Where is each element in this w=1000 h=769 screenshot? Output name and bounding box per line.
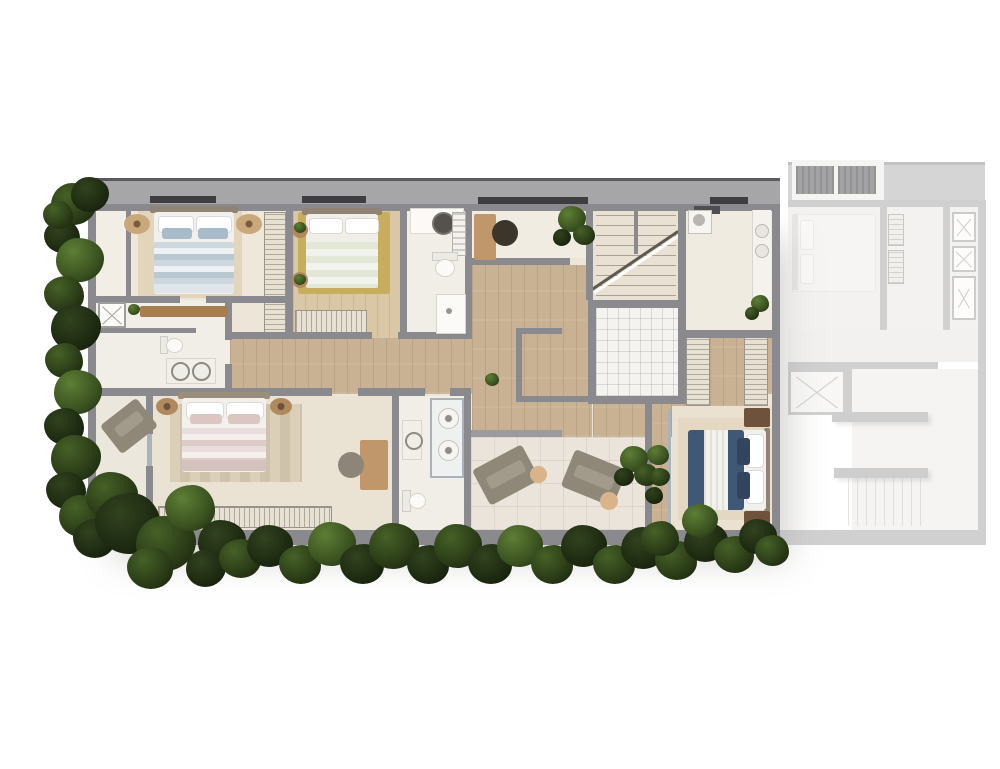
wall [686,330,780,338]
basin [405,432,423,450]
toilet-bowl [435,259,455,277]
shower-tray [436,294,466,334]
floorplan-canvas [0,0,1000,769]
laundry-basin [755,244,769,258]
bedroom-2-pillow [309,218,343,234]
master-nightstand [156,398,178,415]
side-table [530,466,547,483]
bedroom-1-accent-pillow [162,228,192,239]
bedroom-2-side-table [292,222,308,238]
wall [286,204,293,337]
laundry-basin [755,224,769,238]
wall [392,396,399,530]
washer-xbox [98,302,126,328]
wall [465,204,472,332]
shower-room-floor [596,308,678,396]
wall [152,530,780,545]
master-balcony-glass-door [147,434,152,466]
bedroom-3-duvet-runner [704,430,728,510]
wall [230,332,372,339]
wall [400,204,407,339]
window [302,196,366,203]
bedroom-1-nightstand [236,214,262,234]
window [150,196,216,203]
wall [464,396,471,530]
bedroom-1-duvet [154,242,234,288]
side-table [600,492,618,510]
window [478,197,588,204]
master-nightstand [270,398,292,415]
wall [88,204,96,545]
wall [516,328,562,334]
wall [225,364,232,390]
wall [358,388,398,396]
closet-path-floor [710,334,744,406]
balcony-3-glass-door [668,410,671,530]
bedroom-2-pillow [345,218,379,234]
bedroom-1-dresser [140,306,228,317]
desk-chair [492,220,518,246]
master-accent-pillow [190,414,222,424]
bedroom-1-duvet-fold [154,284,234,293]
master-duvet-fold [182,460,266,471]
bedroom-3-accent-pillow [737,438,750,465]
wall [678,204,686,340]
shower-head [438,440,459,461]
wall [398,388,425,396]
walkin-closet-right [744,336,768,406]
master-desk [360,440,388,490]
main-unit [0,0,1000,769]
bedroom-1-accent-pillow [198,228,228,239]
master-wardrobe [158,506,332,528]
bedroom-2-wardrobe [295,310,367,334]
wall [146,466,153,532]
wall [450,388,471,396]
master-accent-pillow [228,414,260,424]
bedroom-3-accent-pillow [737,472,750,499]
shower-head [438,408,459,429]
master-duvet [182,428,266,464]
washing-machine-door [693,214,705,226]
wall [772,204,780,545]
bedroom-1-side-strip [96,204,126,298]
bedroom-2-duvet [306,242,378,288]
toilet-bowl [166,338,183,353]
bedroom-1-nightstand [124,214,150,234]
wall [516,396,596,402]
window [710,197,748,204]
bedroom-3-nightstand [744,408,770,427]
bedroom-1-wardrobe [264,212,286,336]
hallway-floor [472,265,592,437]
bedroom-3-nightstand [744,511,770,530]
terrace-low-wall [471,430,562,437]
wall [516,328,522,402]
wall [645,400,652,545]
wall [586,204,593,300]
basin [171,362,190,381]
wall [96,328,196,333]
walkin-closet-left [686,336,710,406]
mirror-cabinet [452,212,466,256]
wall [92,532,156,540]
master-desk-chair [338,452,364,478]
basin [192,362,211,381]
toilet-bowl [409,493,426,509]
bedroom-2-side-table [292,272,308,288]
drain [446,308,452,314]
staircase-spine [634,206,638,254]
wall [206,296,293,303]
